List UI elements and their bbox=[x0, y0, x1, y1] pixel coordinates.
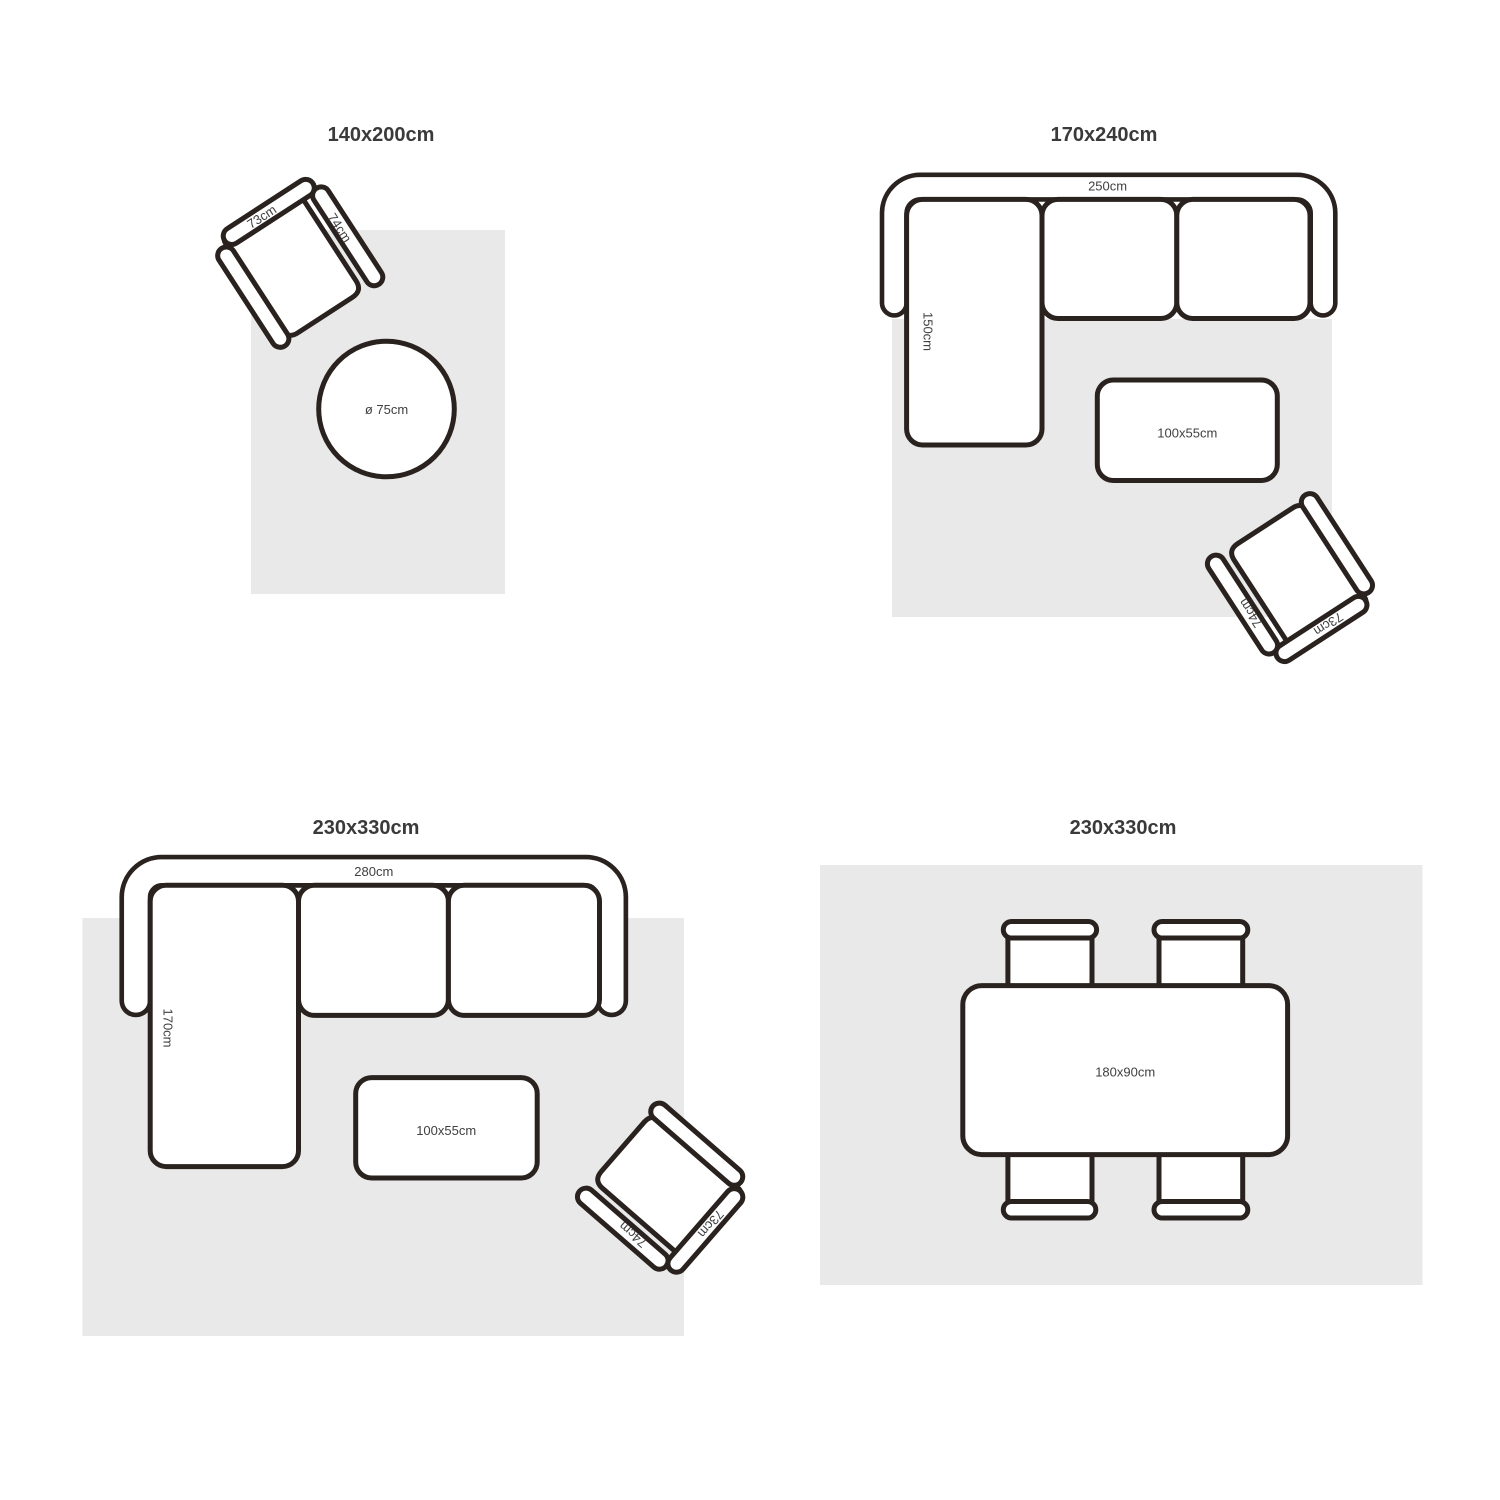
svg-text:100x55cm: 100x55cm bbox=[416, 1123, 476, 1138]
svg-text:150cm: 150cm bbox=[920, 312, 935, 351]
svg-text:170cm: 170cm bbox=[160, 1008, 175, 1047]
svg-text:280cm: 280cm bbox=[354, 864, 393, 879]
svg-text:230x330cm: 230x330cm bbox=[1070, 817, 1177, 839]
svg-text:ø 75cm: ø 75cm bbox=[365, 402, 408, 417]
svg-text:250cm: 250cm bbox=[1088, 179, 1127, 194]
svg-text:230x330cm: 230x330cm bbox=[313, 817, 420, 839]
svg-text:140x200cm: 140x200cm bbox=[328, 124, 435, 146]
svg-text:100x55cm: 100x55cm bbox=[1157, 425, 1217, 440]
svg-text:180x90cm: 180x90cm bbox=[1095, 1065, 1155, 1080]
svg-text:170x240cm: 170x240cm bbox=[1051, 124, 1158, 146]
